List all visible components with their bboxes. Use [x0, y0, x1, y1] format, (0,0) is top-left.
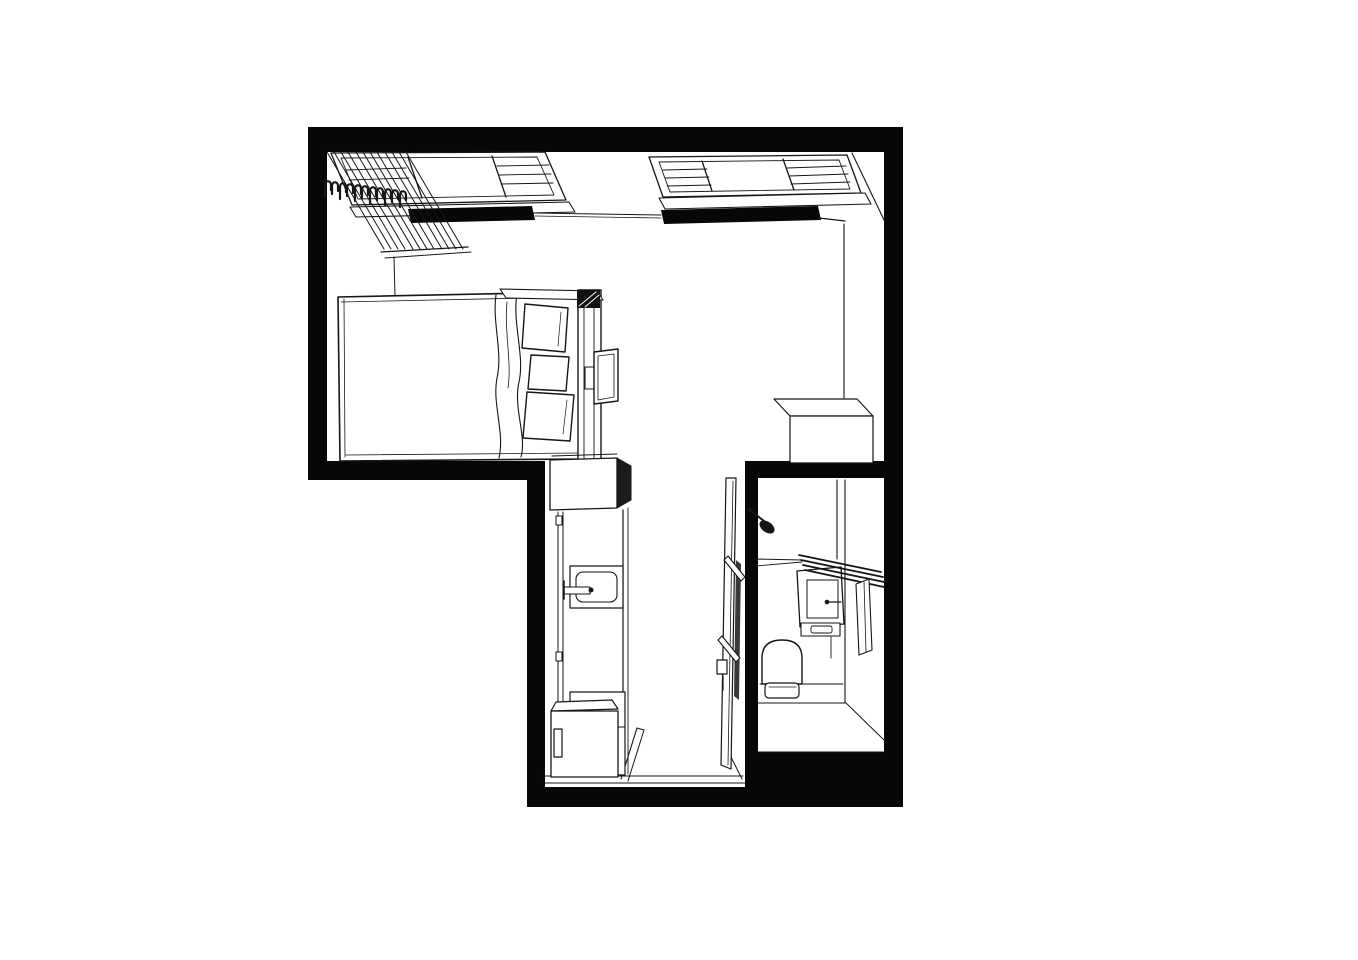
- floor-plan-svg: [0, 0, 1358, 960]
- wall-top: [308, 127, 903, 152]
- vanity-mirror: [807, 580, 838, 618]
- toilet-base: [765, 683, 799, 698]
- bath-floor-diagonal: [845, 702, 884, 740]
- toilet-body: [762, 640, 802, 684]
- curtain-rail-nub: [819, 218, 845, 221]
- floor-plan-canvas: [0, 0, 1358, 960]
- storage-cube-front: [790, 416, 873, 463]
- pillow-bottom: [523, 392, 574, 441]
- wall-left: [308, 127, 327, 480]
- pillow-middle: [528, 355, 569, 391]
- bath-halfwall-edge-2: [756, 562, 802, 566]
- wall-corridor-south: [527, 787, 757, 807]
- curtain-rail-line-2: [535, 216, 661, 218]
- vanity-knob: [825, 600, 830, 605]
- corridor-floor-diag-2: [628, 730, 644, 781]
- hanger-2: [332, 182, 338, 194]
- minifridge-top: [551, 700, 618, 711]
- wall-bedroom-south: [308, 461, 545, 480]
- storage-cube-top: [774, 399, 873, 416]
- window-left-radiator-bar: [408, 206, 535, 223]
- kitchen-faucet-arm: [564, 587, 590, 594]
- canopy-drop-line: [394, 257, 395, 296]
- shower-head: [757, 518, 777, 536]
- bath-halfwall-edge-1: [756, 559, 802, 560]
- hanger-1: [325, 181, 331, 197]
- kitchen-cabinet-front: [550, 458, 617, 510]
- wall-corridor-west: [527, 461, 545, 807]
- pillow-top: [522, 304, 568, 352]
- kitchen-hinge-2: [556, 652, 562, 661]
- vanity-drawer: [801, 623, 840, 636]
- canopy-edge-1: [381, 247, 468, 252]
- corridor-floor-diag-cap: [637, 728, 644, 730]
- kitchen-hinge-1: [556, 516, 562, 525]
- shower-pivot: [748, 508, 753, 513]
- wall-bath-west: [745, 461, 758, 761]
- canopy-edge-2: [385, 252, 471, 258]
- hanger-3: [340, 183, 346, 199]
- wall-bath-south-block: [745, 752, 903, 807]
- bath-door-handle: [717, 660, 727, 674]
- curtain-rail-line-1: [535, 213, 661, 215]
- bath-door-dark-edge: [734, 560, 741, 700]
- kitchen-cabinet-side: [617, 458, 631, 508]
- minifridge-handle: [554, 729, 562, 757]
- kitchen-faucet-dot: [589, 588, 594, 593]
- wall-right: [884, 127, 903, 807]
